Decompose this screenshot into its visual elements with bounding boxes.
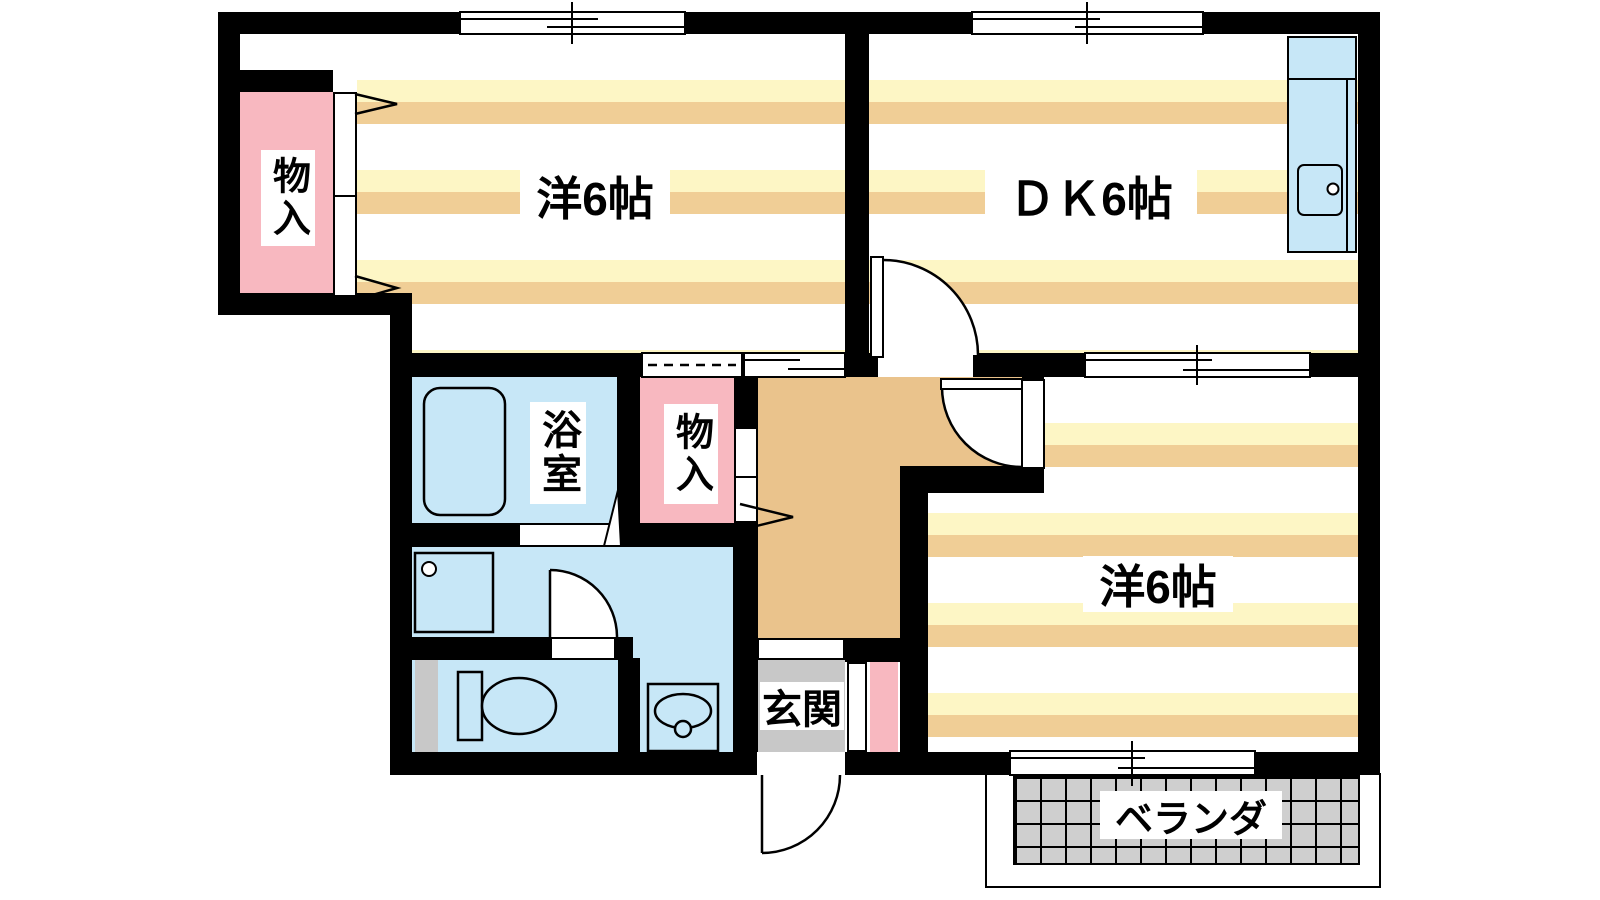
window-room2 xyxy=(1010,741,1255,786)
closet1-arrow-top xyxy=(355,94,397,114)
veranda-label: ベランダ xyxy=(1100,791,1282,839)
closet2-label: 物入 xyxy=(664,404,718,504)
window-dk xyxy=(972,2,1203,44)
room1-label: 洋6帖 xyxy=(520,168,670,224)
entrance-label: 玄関 xyxy=(760,682,844,730)
room2-door xyxy=(941,379,1044,468)
bathtub-icon xyxy=(424,388,505,515)
kitchen-counter-icon xyxy=(1288,37,1356,252)
dk-door xyxy=(871,257,978,375)
bath-label: 浴室 xyxy=(530,402,586,504)
closet2-top-opening xyxy=(642,353,742,377)
closet2-arrow xyxy=(740,504,793,530)
closet1-label: 物入 xyxy=(261,150,315,246)
entrance-door xyxy=(762,775,840,853)
linework xyxy=(0,0,1600,900)
floor-plan: 洋6帖 ＤＫ6帖 洋6帖 浴室 物入 物入 玄関 ベランダ xyxy=(0,0,1600,900)
sliding-door-dk-room2 xyxy=(1085,345,1310,385)
closet1-arrow-bottom xyxy=(355,276,397,300)
room2-label: 洋6帖 xyxy=(1083,556,1233,612)
washbasin-icon xyxy=(415,553,493,632)
dk-label: ＤＫ6帖 xyxy=(985,168,1197,224)
window-room1 xyxy=(460,2,685,44)
toilet-icon xyxy=(458,672,556,740)
washroom-door xyxy=(550,570,617,658)
room1-doorway xyxy=(744,353,845,377)
washing-machine-pan-icon xyxy=(648,684,718,751)
